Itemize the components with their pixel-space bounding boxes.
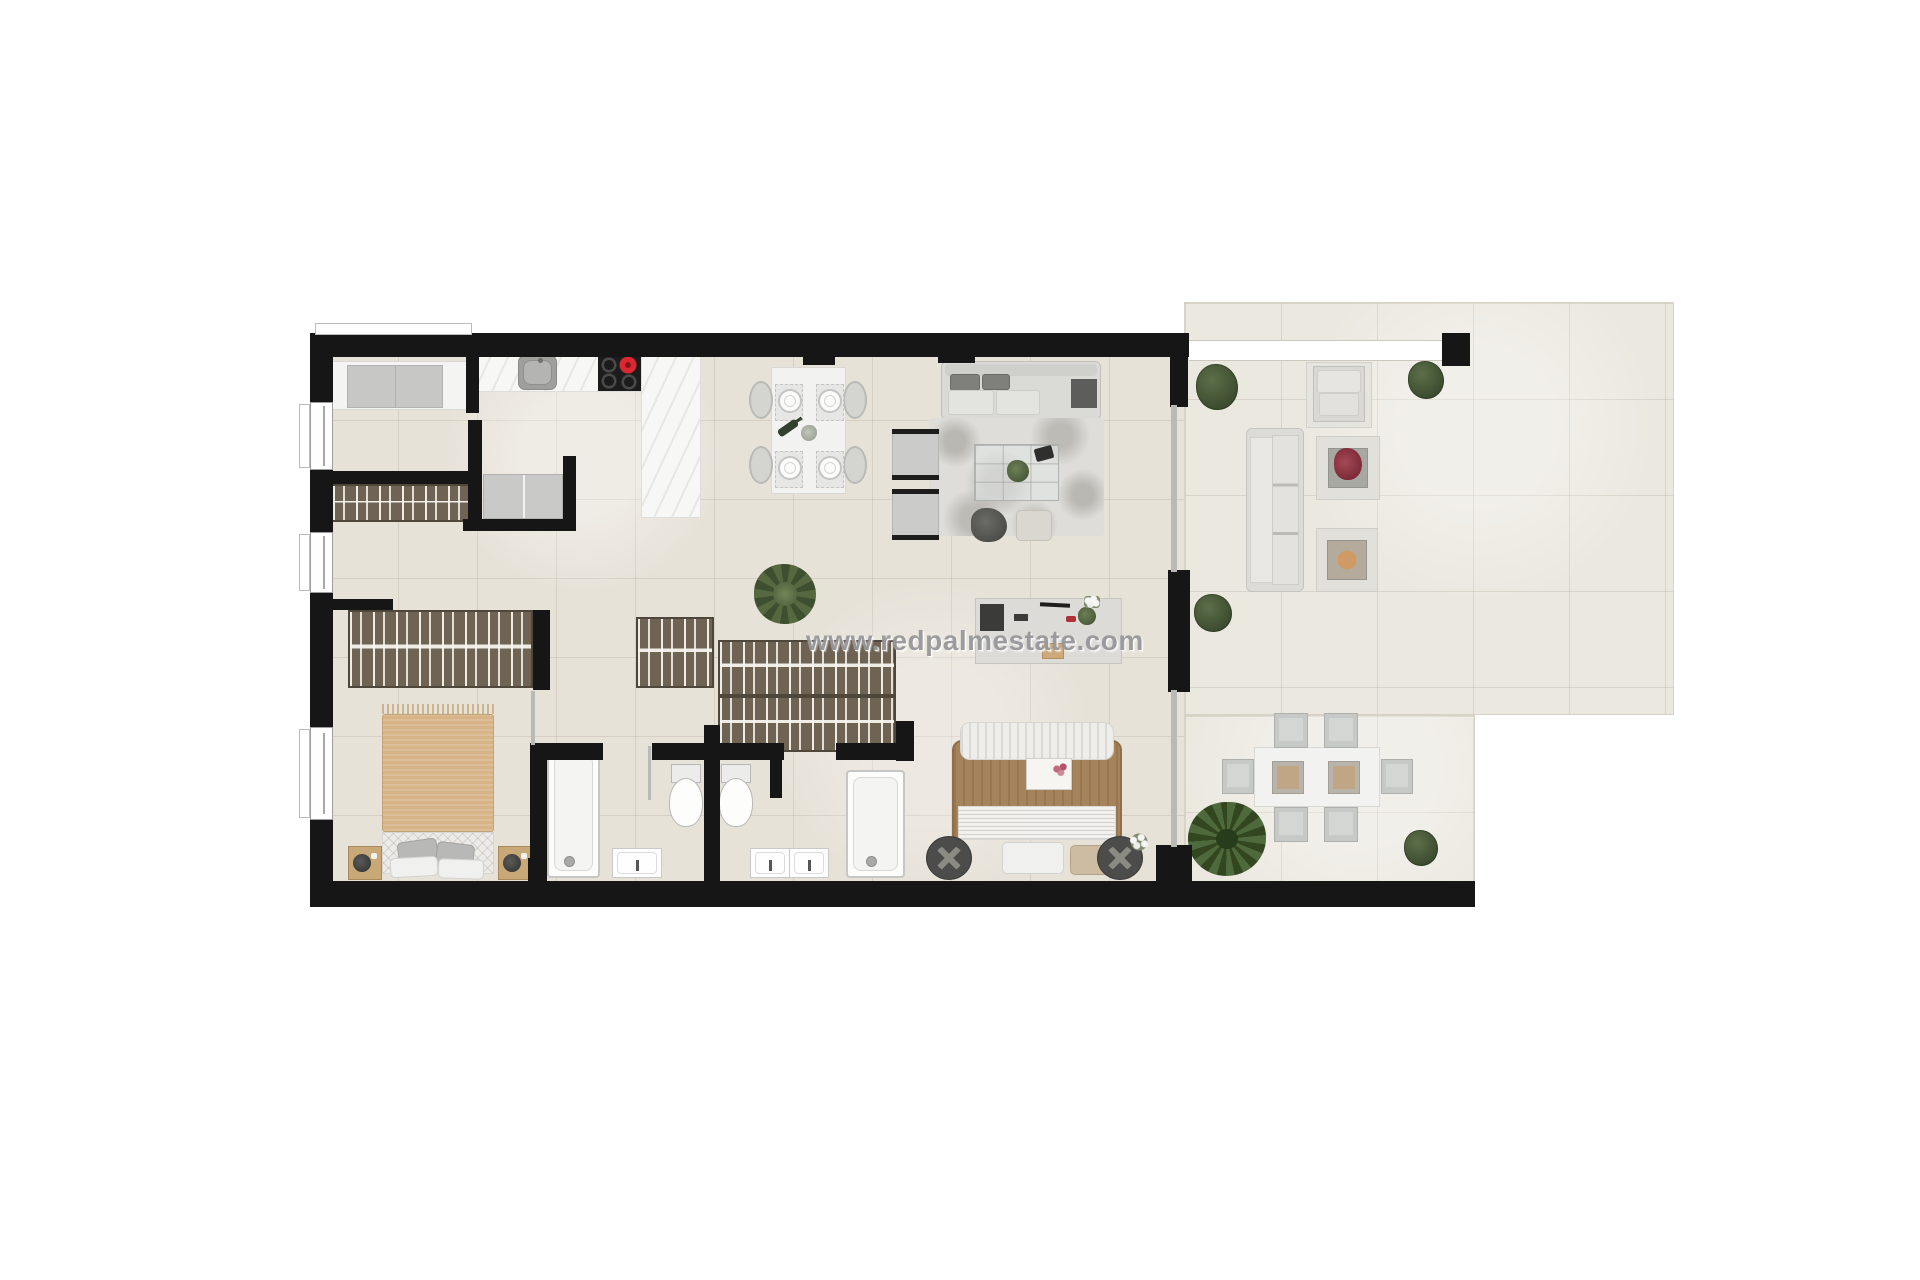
window-3: [310, 727, 333, 820]
windowsill-3: [299, 729, 310, 818]
sliding-glass-door-2: [1171, 690, 1177, 847]
sliding-glass-door-1: [1171, 405, 1177, 572]
window-1: [310, 402, 333, 470]
window-2: [310, 532, 333, 593]
floor-plan-canvas: www.redpalmestate.com: [0, 0, 1920, 1280]
windowsill-1: [299, 404, 310, 468]
windowsill-2: [299, 534, 310, 591]
shower-screen: [648, 746, 651, 800]
windowsill-top: [315, 323, 472, 335]
door-leaf-bedroom1: [531, 691, 535, 745]
terrace-white-band: [1189, 340, 1442, 361]
watermark-text: www.redpalmestate.com: [806, 625, 1144, 657]
